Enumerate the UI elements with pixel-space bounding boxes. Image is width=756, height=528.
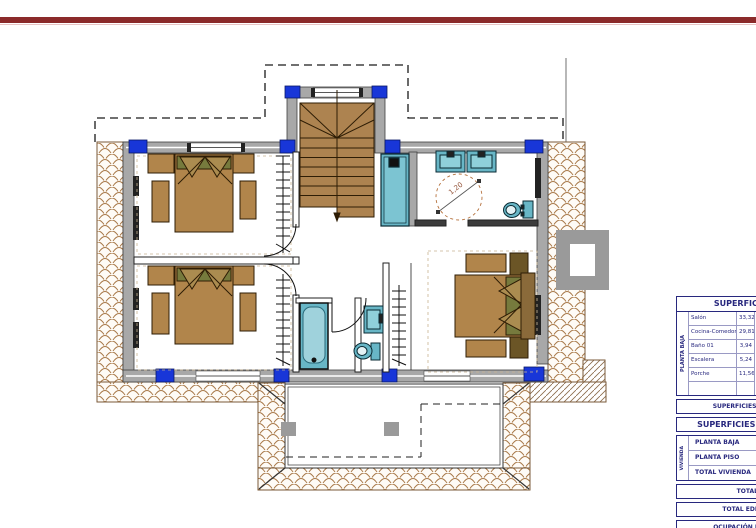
superficies-utiles-table: SUPERFICIES ÚTILES PLANTA BAJA Salón 33,… xyxy=(676,296,756,396)
group-label-planta-baja: PLANTA BAJA xyxy=(677,312,689,395)
total-edificaciones-row: TOTAL EDIFICACIONES xyxy=(676,502,756,517)
row-value: 29,81 xyxy=(737,326,755,340)
row-value: 5,24 xyxy=(737,354,755,368)
row-label: Porche xyxy=(689,368,737,382)
group-label-vivienda: VIVIENDA xyxy=(677,436,689,480)
chimney xyxy=(556,230,609,290)
titleblock-rule xyxy=(0,17,756,23)
row-value xyxy=(737,382,755,395)
toilet-icon xyxy=(354,343,380,360)
utiles-grid: PLANTA BAJA Salón 33,32 PLANTA PISO Dorm… xyxy=(677,312,756,395)
wardrobe-hangers-icon xyxy=(276,274,290,366)
double-sink-icon xyxy=(436,151,496,172)
table-title: SUPERFICIES ÚTILES xyxy=(677,297,756,312)
row-label: Salón xyxy=(689,312,737,326)
utiles-total-row: SUPERFICIES ÚTIL TOTAL 12 xyxy=(676,399,756,414)
total-anexo-row: TOTAL ANEXO xyxy=(676,484,756,499)
row-value: 3,94 xyxy=(737,340,755,354)
row-value: 33,32 xyxy=(737,312,755,326)
toilet-icon xyxy=(504,201,534,218)
row-label: PLANTA PISO xyxy=(689,451,756,466)
washbasin-icon xyxy=(364,306,383,333)
superficies-construidas-table: SUPERFICIES CONSTRUIDAS xyxy=(676,417,756,432)
wardrobe-hangers-icon xyxy=(392,285,406,366)
row-label: Baño 01 xyxy=(689,340,737,354)
table-title: SUPERFICIES CONSTRUIDAS xyxy=(677,418,756,431)
row-label: Escalera xyxy=(689,354,737,368)
turning-circle-icon: 1,20 xyxy=(436,174,482,220)
porch-column xyxy=(281,422,296,436)
vivienda-group: VIVIENDA PLANTA BAJA PLANTA PISO TOTAL V… xyxy=(676,435,756,481)
shower-icon xyxy=(381,154,409,226)
surface-tables: SUPERFICIES ÚTILES PLANTA BAJA Salón 33,… xyxy=(676,296,756,528)
titleblock-rule-light xyxy=(0,24,756,25)
row-label: PLANTA BAJA xyxy=(689,436,756,451)
ocupacion-edificaciones-row: OCUPACIÓN EDIFICACIONES xyxy=(676,520,756,528)
floor-plan: 1,20 xyxy=(88,52,636,498)
bed-icon xyxy=(455,253,535,358)
row-value: 11,56 xyxy=(737,368,755,382)
bed-icon xyxy=(148,154,256,232)
wardrobe-hangers-icon xyxy=(276,156,290,253)
bathtub-icon xyxy=(300,303,328,369)
bed-icon xyxy=(148,266,256,344)
porch-column xyxy=(384,422,399,436)
row-label: Cocina-Comedor xyxy=(689,326,737,340)
row-label xyxy=(689,382,737,395)
staircase-icon xyxy=(300,90,374,221)
drawing-sheet: 1,20 xyxy=(0,0,756,528)
row-label: TOTAL VIVIENDA xyxy=(689,466,756,480)
